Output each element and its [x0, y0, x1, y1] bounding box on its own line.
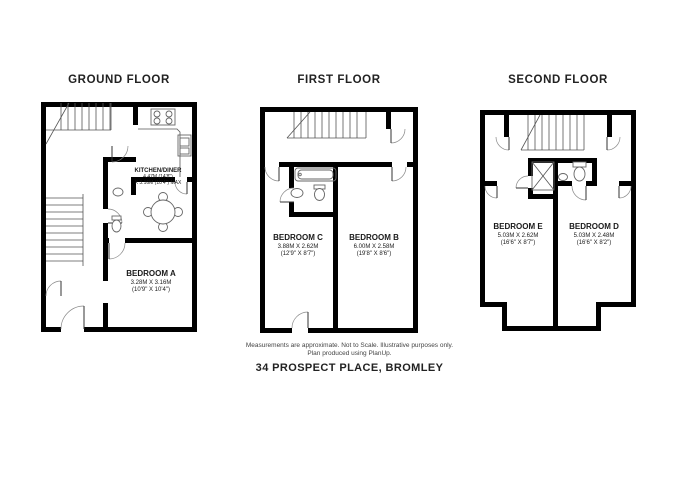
bedroom-b-dim-imperial: (19'8" X 8'6") — [357, 251, 392, 257]
footer: Measurements are approximate. Not to Sca… — [0, 342, 699, 374]
bedroom-c-label: BEDROOM C — [273, 233, 323, 242]
bedroom-a-dim-metric: 3.28M X 3.16M — [131, 280, 172, 286]
floor-second: SECOND FLOOR — [476, 74, 640, 338]
second-floor-plan: BEDROOM E 5.03M X 2.62M (16'6" X 8'7") B… — [476, 98, 640, 338]
bedroom-d-dim-metric: 5.03M X 2.48M — [574, 233, 615, 239]
wc-toilet-icon — [112, 216, 121, 232]
walls — [260, 107, 418, 333]
floor-first: FIRST FLOOR — [258, 74, 420, 338]
bathroom-sink-icon — [291, 189, 303, 198]
toilet-icon — [314, 185, 325, 201]
kitchen-sink-icon — [178, 135, 191, 156]
disclaimer-line1: Measurements are approximate. Not to Sca… — [0, 342, 699, 350]
staircase — [521, 115, 584, 150]
disclaimer-line2: Plan produced using PlanUp. — [0, 350, 699, 358]
bathtub-icon — [295, 168, 336, 181]
first-floor-title: FIRST FLOOR — [258, 74, 420, 92]
first-floor-plan: BEDROOM C 3.88M X 2.62M (12'9" X 8'7") B… — [258, 98, 420, 338]
kitchen-dim-imperial: X 3.16M (10'4") MAX — [135, 180, 182, 186]
bedroom-d-label: BEDROOM D — [569, 222, 619, 231]
ground-floor-title: GROUND FLOOR — [39, 74, 199, 92]
shower-room-sink-icon — [559, 174, 568, 181]
bedroom-a-label: BEDROOM A — [126, 269, 176, 278]
floorplan-page: GROUND FLOOR — [0, 0, 699, 484]
walls — [480, 110, 636, 331]
bedroom-e-dim-imperial: (16'6" X 8'7") — [501, 240, 536, 246]
bedroom-e-dim-metric: 5.03M X 2.62M — [498, 233, 539, 239]
bedroom-c-dim-metric: 3.88M X 2.62M — [278, 244, 319, 250]
bedroom-d-dim-imperial: (16'6" X 8'2") — [577, 240, 612, 246]
bedroom-a-dim-imperial: (10'9" X 10'4") — [132, 287, 170, 293]
bedroom-c-dim-imperial: (12'9" X 8'7") — [281, 251, 316, 257]
floor-ground: GROUND FLOOR — [39, 74, 199, 338]
stove-icon — [151, 109, 175, 125]
ground-floor-plan: KITCHEN/DINER 4.47M (14'8") X 3.16M (10'… — [39, 98, 199, 338]
toilet-icon — [573, 162, 586, 181]
shower-icon — [532, 162, 554, 190]
bedroom-b-label: BEDROOM B — [349, 233, 399, 242]
bedroom-b-dim-metric: 6.00M X 2.58M — [354, 244, 395, 250]
dining-table-icon — [144, 193, 183, 232]
property-address: 34 PROSPECT PLACE, BROMLEY — [0, 362, 699, 374]
staircase — [287, 112, 366, 138]
second-floor-title: SECOND FLOOR — [476, 74, 640, 92]
bedroom-e-label: BEDROOM E — [493, 222, 543, 231]
staircase — [46, 103, 111, 266]
wc-sink-icon — [113, 188, 123, 196]
